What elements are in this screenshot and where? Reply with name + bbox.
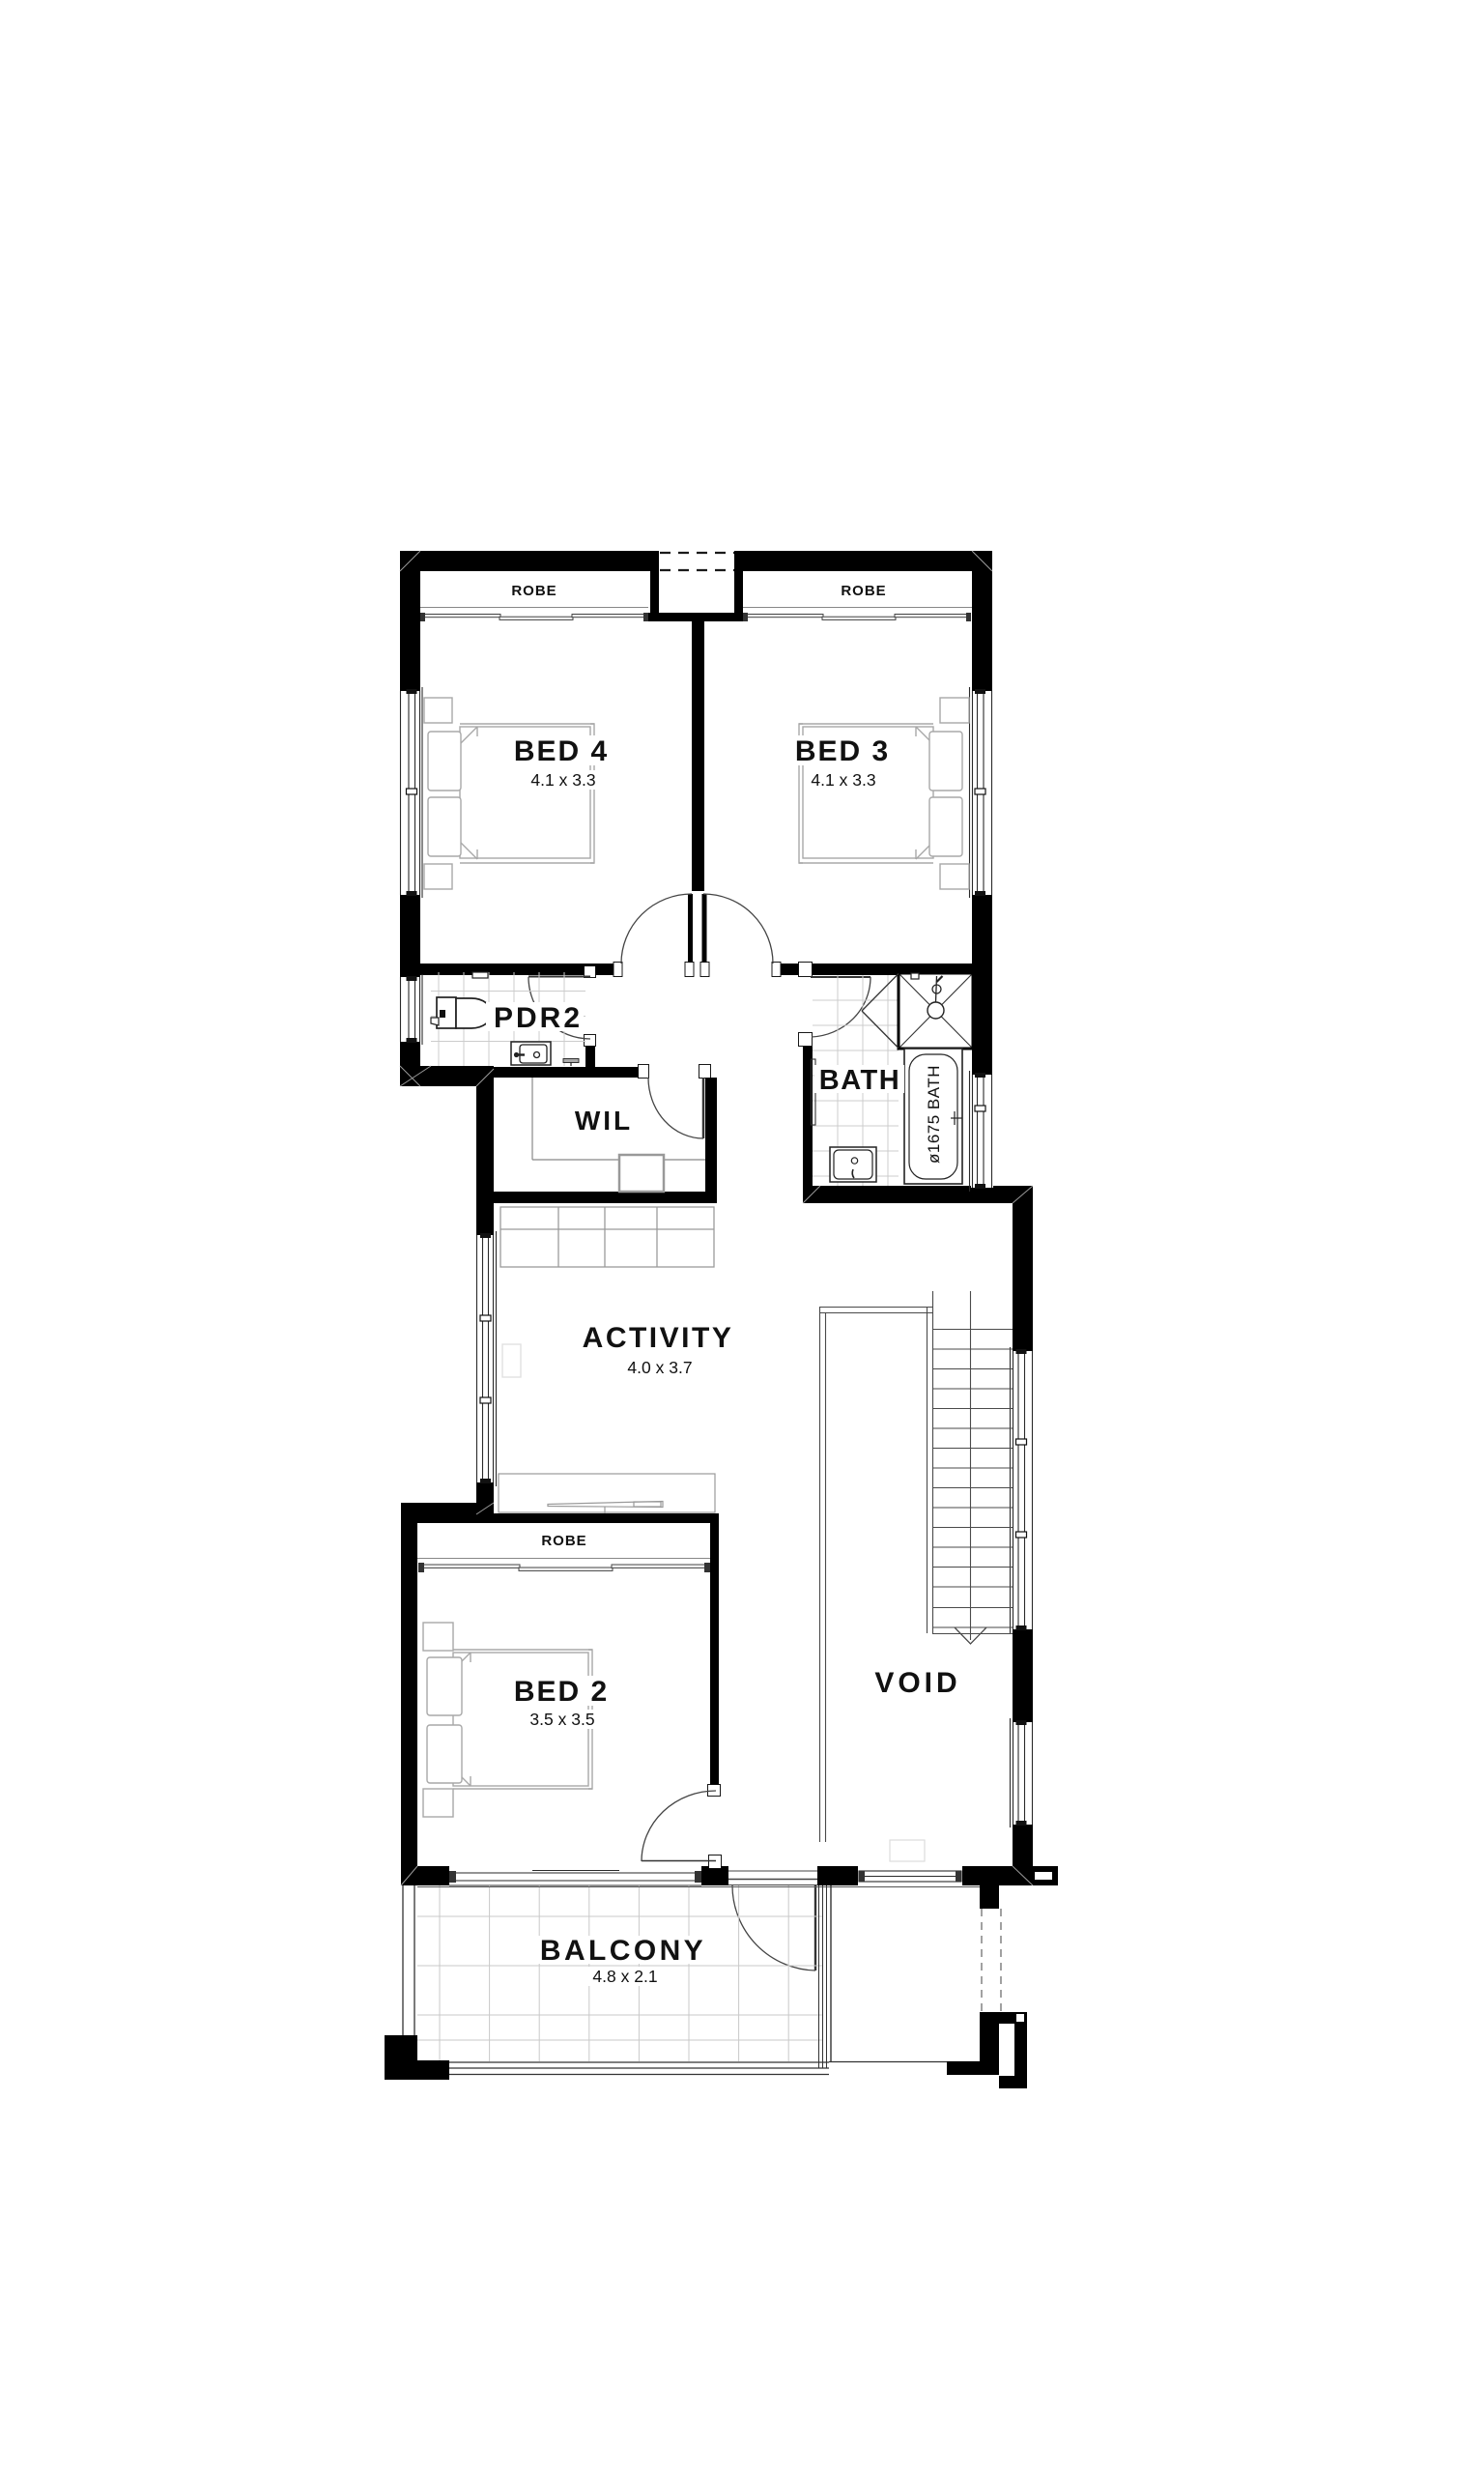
svg-text:BED 3: BED 3 xyxy=(795,735,890,767)
svg-text:ROBE: ROBE xyxy=(511,583,556,599)
svg-text:BED 2: BED 2 xyxy=(514,1676,609,1708)
svg-text:WIL: WIL xyxy=(575,1106,633,1136)
svg-text:4.1 x 3.3: 4.1 x 3.3 xyxy=(811,770,875,790)
svg-text:4.0 x 3.7: 4.0 x 3.7 xyxy=(627,1358,692,1377)
svg-text:ACTIVITY: ACTIVITY xyxy=(583,1322,734,1354)
svg-text:3.5 x 3.5: 3.5 x 3.5 xyxy=(529,1710,594,1729)
svg-text:ROBE: ROBE xyxy=(841,583,886,599)
svg-text:BATH: BATH xyxy=(819,1065,900,1096)
svg-text:BED 4: BED 4 xyxy=(514,735,609,767)
svg-text:4.1 x 3.3: 4.1 x 3.3 xyxy=(530,770,595,790)
svg-text:ROBE: ROBE xyxy=(541,1533,586,1549)
svg-text:ø1675 BATH: ø1675 BATH xyxy=(925,1065,943,1164)
svg-text:BALCONY: BALCONY xyxy=(540,1935,706,1967)
svg-text:VOID: VOID xyxy=(874,1667,960,1699)
svg-text:4.8 x 2.1: 4.8 x 2.1 xyxy=(592,1967,657,1986)
svg-text:PDR2: PDR2 xyxy=(494,1002,583,1034)
